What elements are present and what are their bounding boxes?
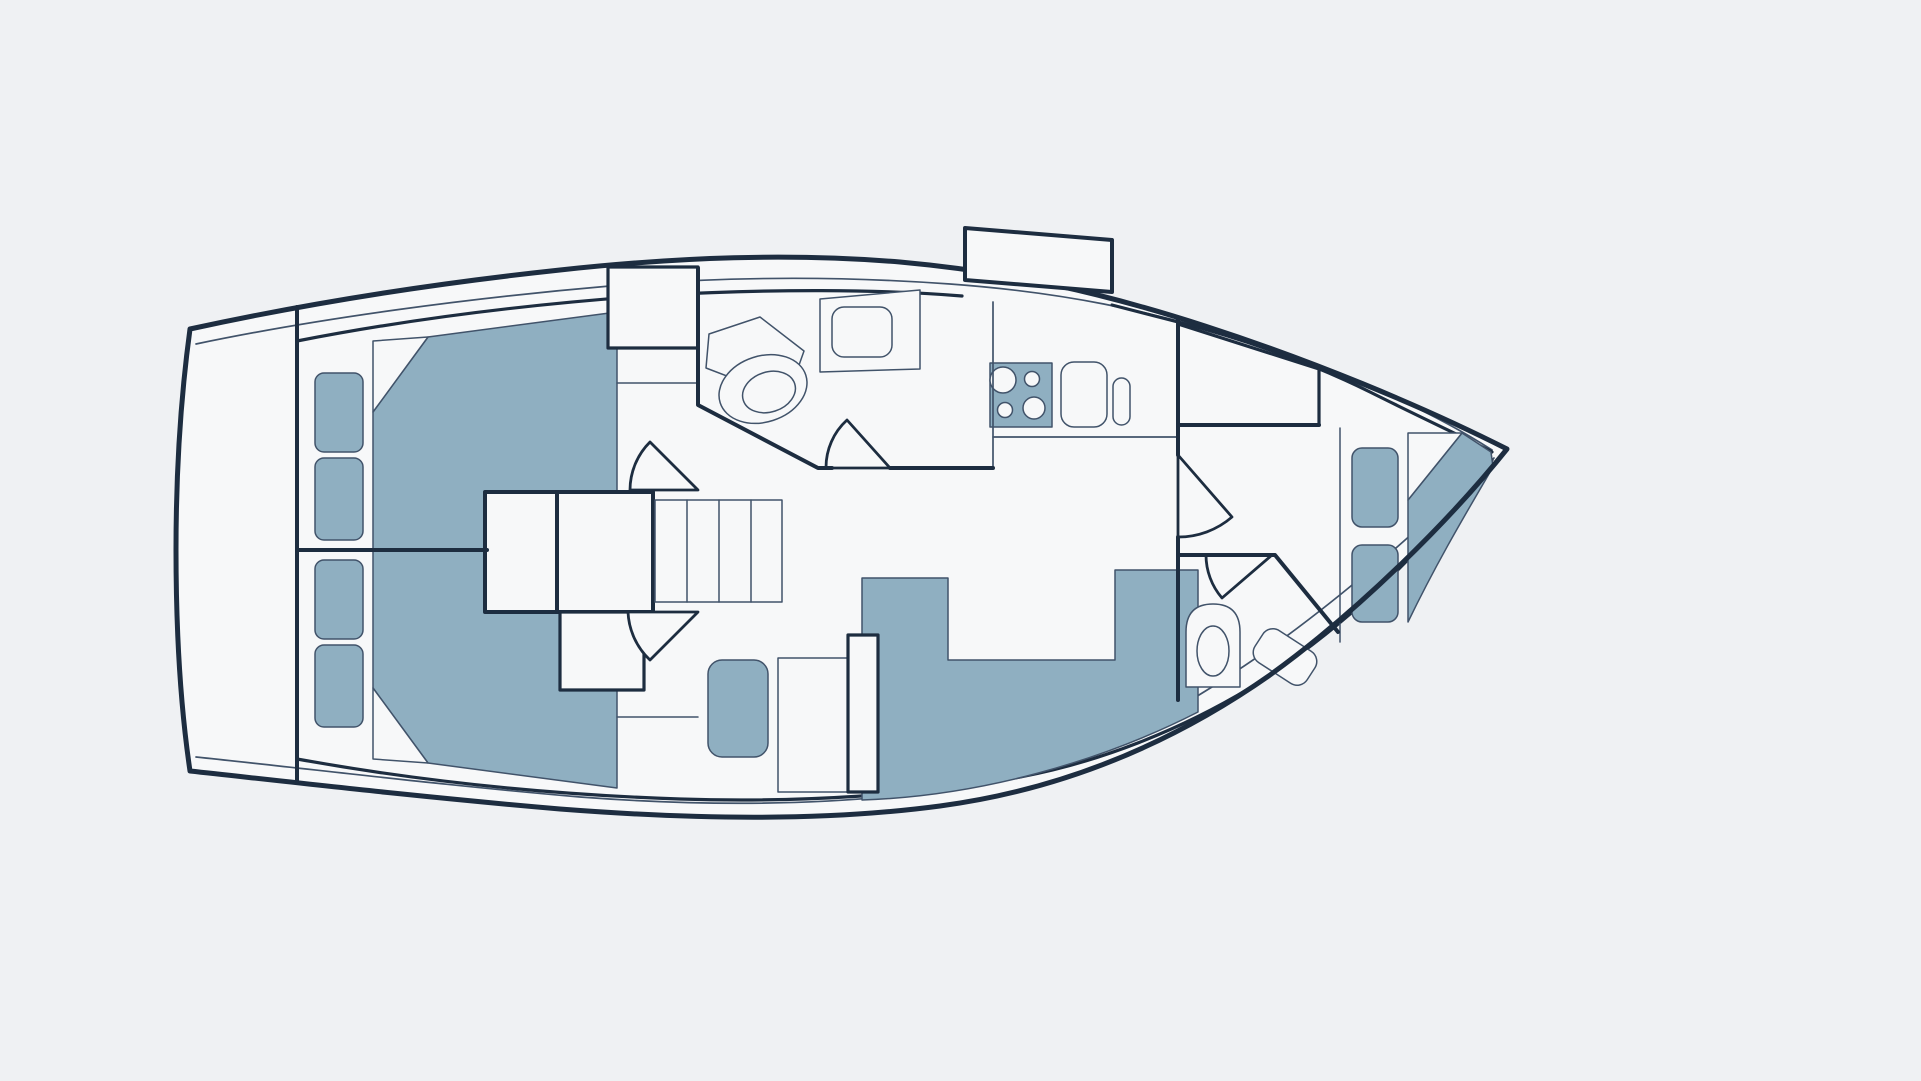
table-leaf [848, 635, 878, 792]
toilet [1186, 604, 1240, 687]
table-top [778, 658, 848, 792]
companionway-stairs [655, 500, 782, 602]
sliding-hatch-garage [965, 228, 1112, 292]
burner-large [1023, 397, 1045, 419]
seat-cushion [1352, 448, 1398, 527]
salon-seat [708, 660, 768, 757]
galley-sink [1061, 362, 1107, 427]
burner-small [1025, 372, 1040, 387]
seat-cushion [1352, 545, 1398, 622]
locker-cushion [315, 560, 363, 639]
salon-table [778, 635, 878, 792]
sailboat-deck-plan [0, 0, 1921, 1081]
sink-basin [832, 307, 892, 357]
boat-floor-plan-canvas [0, 0, 1921, 1081]
engine-box [485, 492, 653, 612]
hanging-closet [608, 267, 698, 348]
locker-cushion [315, 458, 363, 540]
locker-cushion [315, 645, 363, 727]
burner-large [990, 367, 1016, 393]
burner-small [998, 403, 1013, 418]
locker-cushion [315, 373, 363, 452]
small-basin [1113, 378, 1130, 425]
